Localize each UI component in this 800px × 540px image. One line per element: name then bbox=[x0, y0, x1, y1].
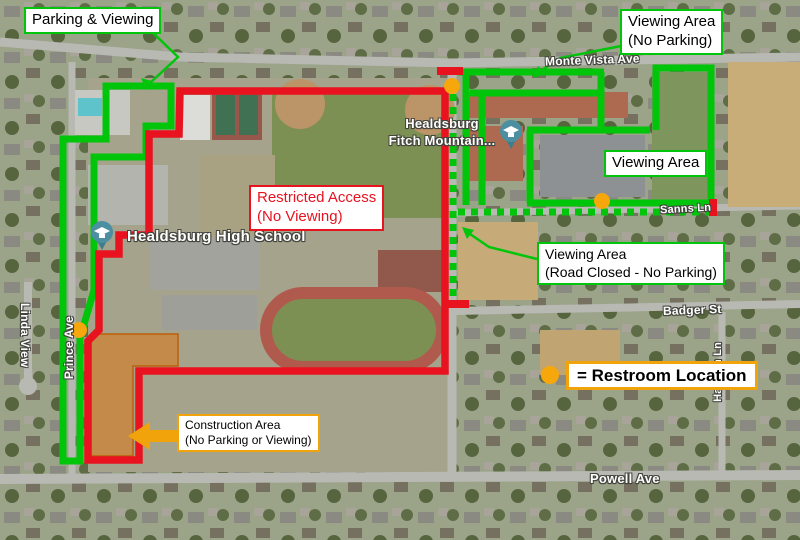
pool bbox=[78, 98, 102, 116]
school-building bbox=[150, 238, 260, 290]
callout-viewing-area-text: Viewing Area bbox=[612, 154, 699, 171]
callout-restricted-access: Restricted Access (No Viewing) bbox=[249, 185, 384, 231]
legend-restroom-marker bbox=[541, 366, 559, 384]
graduation-cap-icon bbox=[508, 133, 514, 137]
callout-construction: Construction Area (No Parking or Viewing… bbox=[177, 414, 320, 452]
callout-line: Construction Area bbox=[185, 418, 312, 433]
callout-parking-viewing: Parking & Viewing bbox=[24, 7, 161, 34]
running-track bbox=[266, 293, 442, 367]
legend-restroom: = Restroom Location bbox=[566, 361, 758, 390]
callout-road-closed: Viewing Area (Road Closed - No Parking) bbox=[537, 242, 725, 285]
callout-line: Restricted Access bbox=[257, 189, 376, 208]
tennis-court bbox=[239, 95, 258, 135]
restroom-marker bbox=[444, 78, 460, 94]
legend-restroom-text: = Restroom Location bbox=[577, 366, 747, 385]
restroom-marker bbox=[594, 193, 610, 209]
linda-view-culdesac bbox=[19, 377, 37, 395]
baseball-diamond bbox=[275, 79, 325, 129]
callout-parking-viewing-text: Parking & Viewing bbox=[32, 11, 153, 28]
school-building bbox=[162, 295, 257, 330]
event-parking-map: Monte Vista Ave Sanns Ln Badger St Powel… bbox=[0, 0, 800, 540]
callout-line: Viewing Area bbox=[545, 246, 717, 264]
callout-line: (No Parking) bbox=[628, 32, 715, 51]
tennis-court bbox=[216, 95, 235, 135]
callout-line: (No Viewing) bbox=[257, 208, 376, 227]
callout-line: Viewing Area bbox=[628, 13, 715, 32]
dry-hill bbox=[728, 62, 800, 207]
graduation-cap-icon bbox=[99, 234, 105, 238]
callout-viewing-area: Viewing Area bbox=[604, 150, 707, 177]
school-building bbox=[180, 95, 210, 140]
callout-line: (Road Closed - No Parking) bbox=[545, 264, 717, 282]
road-powell-ave bbox=[0, 475, 800, 479]
restroom-marker bbox=[71, 322, 87, 338]
callout-line: (No Parking or Viewing) bbox=[185, 433, 312, 448]
callout-viewing-no-parking: Viewing Area (No Parking) bbox=[620, 9, 723, 55]
fitch-grass-field bbox=[652, 72, 712, 202]
school-building bbox=[88, 165, 168, 225]
courts bbox=[378, 250, 448, 292]
